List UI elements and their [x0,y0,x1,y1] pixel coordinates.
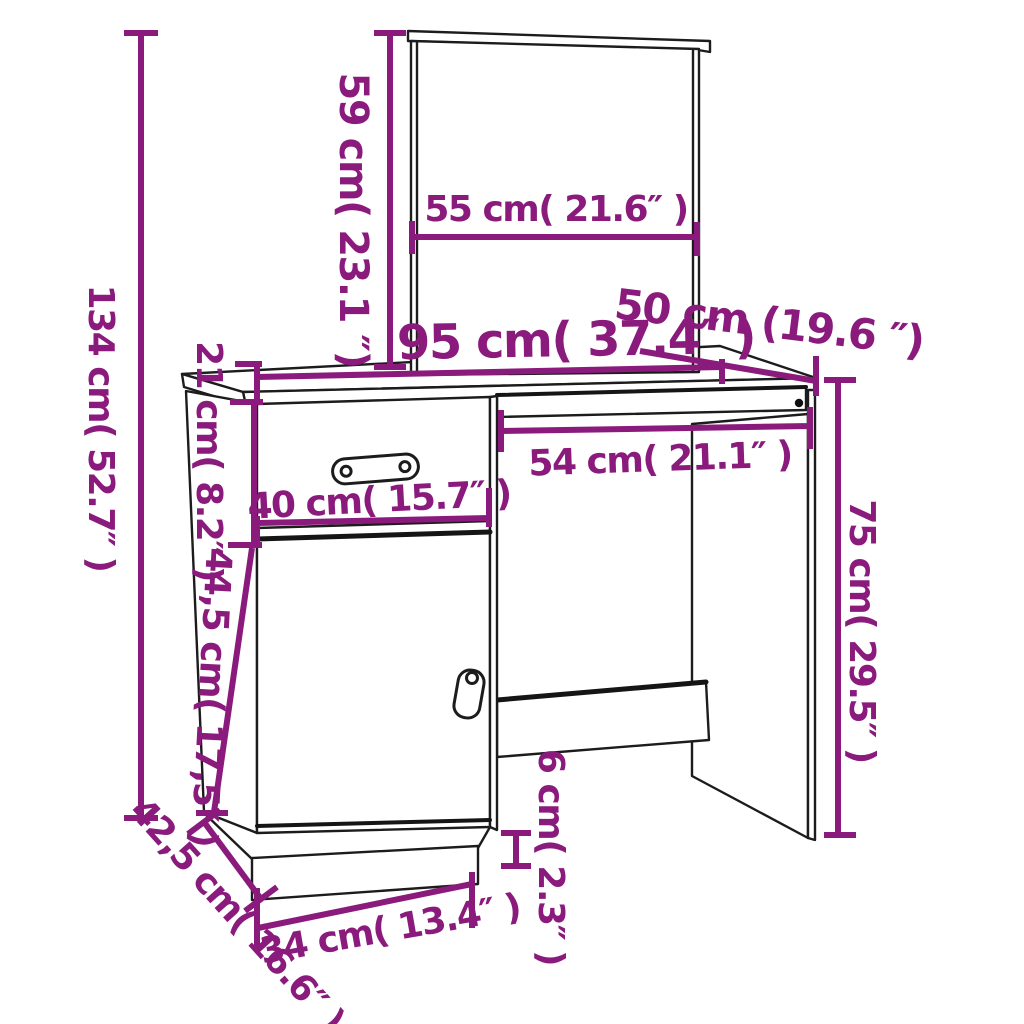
plinth-right-recess-edge [478,827,490,848]
dimension-diagram: 134 cm( 52.7″ ) 59 cm( 23.1 ″) 55 cm( 21… [0,0,1024,1024]
dimension-label-mirror-width: 55 cm( 21.6″ ) [424,189,687,230]
dimension-label-panel-height: 75 cm( 29.5″ ) [841,499,882,762]
dimension-line-total-height [124,33,158,818]
door-handle-screw [467,673,478,684]
dimension-label-mirror-height: 59 cm( 23.1 ″) [330,73,376,368]
dimension-line-plinth-height [501,833,531,866]
dimension-label-drawer-height: 21 cm( 8.2″ ) [188,341,229,581]
cabinet-right-edge [490,396,497,830]
side-panel-front-edge [808,390,815,840]
drawer-handle-screw-right [400,461,411,472]
diagram-canvas: 134 cm( 52.7″ ) 59 cm( 23.1 ″) 55 cm( 21… [0,0,1024,1024]
drawer-handle-screw-left [341,466,352,477]
dimension-label-plinth-height: 6 cm( 2.3″ ) [530,749,571,965]
dimension-label-total-height: 134 cm( 52.7″ ) [80,285,121,572]
tray-knob [795,399,803,407]
